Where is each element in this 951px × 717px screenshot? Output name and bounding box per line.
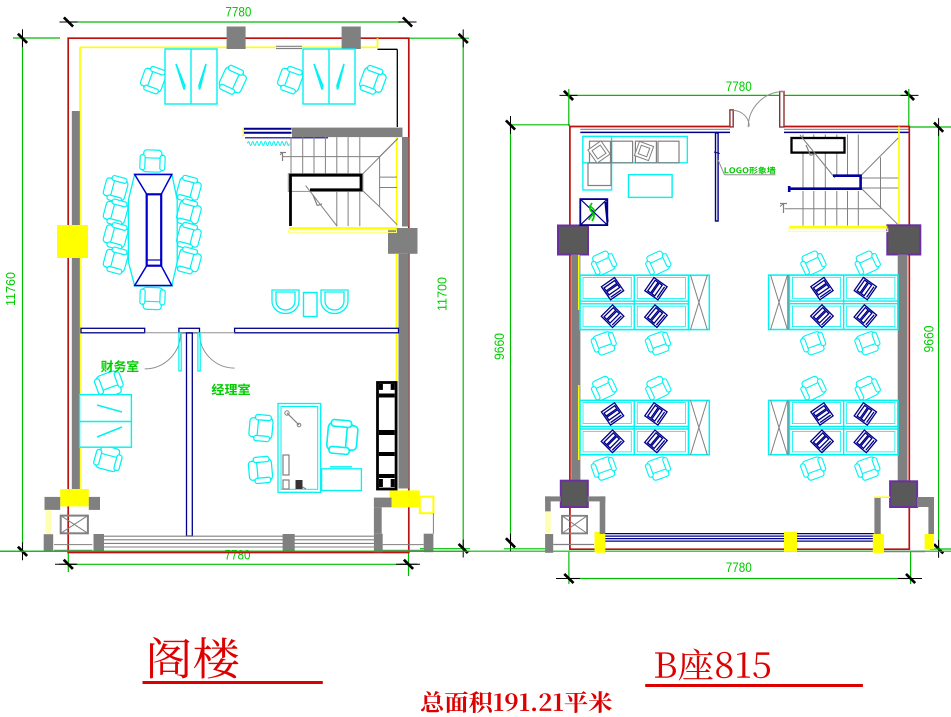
svg-text:11700: 11700	[435, 277, 450, 311]
svg-text:11760: 11760	[3, 272, 18, 306]
svg-text:7780: 7780	[726, 78, 752, 94]
svg-text:7780: 7780	[726, 559, 752, 575]
svg-text:9660: 9660	[922, 326, 937, 353]
svg-text:7780: 7780	[225, 4, 251, 20]
svg-text:7780: 7780	[225, 547, 251, 563]
svg-text:9660: 9660	[492, 333, 507, 360]
